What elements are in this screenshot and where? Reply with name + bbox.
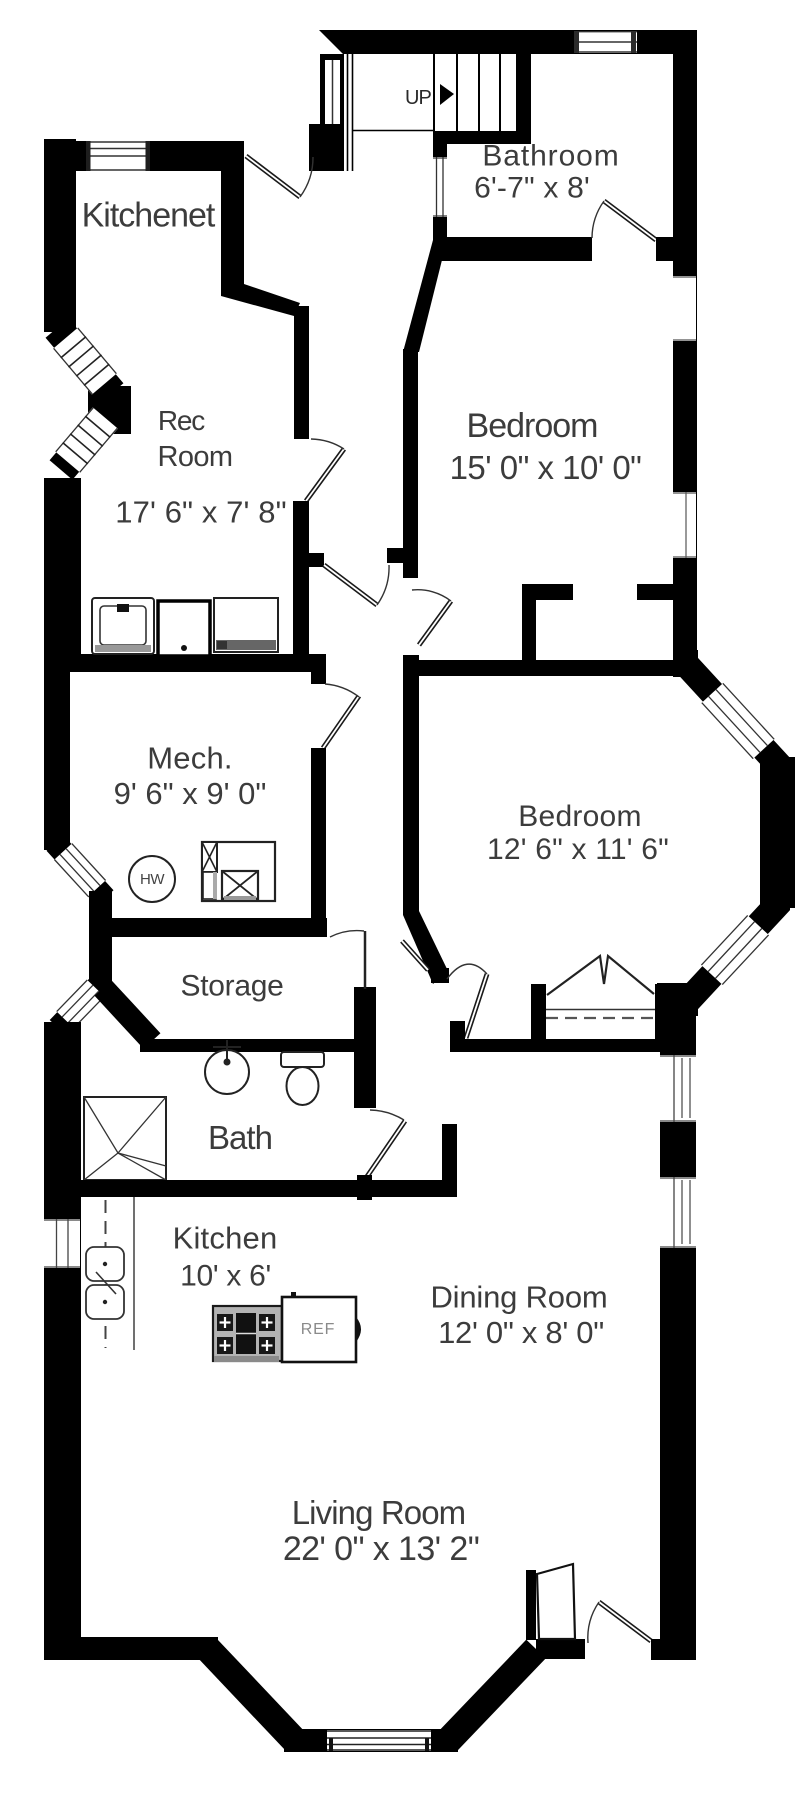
svg-text:9' 6" x 9' 0": 9' 6" x 9' 0" bbox=[114, 776, 267, 811]
svg-text:Mech.: Mech. bbox=[147, 740, 232, 775]
svg-text:12' 0" x 8' 0": 12' 0" x 8' 0" bbox=[438, 1315, 604, 1350]
svg-text:Rec: Rec bbox=[158, 405, 205, 436]
svg-text:Storage: Storage bbox=[181, 970, 284, 1003]
svg-text:Room: Room bbox=[158, 441, 233, 473]
svg-text:Bath: Bath bbox=[208, 1119, 272, 1156]
svg-text:6'-7" x 8': 6'-7" x 8' bbox=[474, 171, 590, 204]
svg-text:Living Room: Living Room bbox=[292, 1494, 466, 1531]
svg-text:UP: UP bbox=[405, 87, 432, 109]
svg-text:17' 6" x 7' 8": 17' 6" x 7' 8" bbox=[115, 495, 286, 530]
svg-text:12' 6" x 11' 6": 12' 6" x 11' 6" bbox=[487, 833, 669, 866]
svg-text:10' x 6': 10' x 6' bbox=[180, 1259, 271, 1292]
svg-text:Bedroom: Bedroom bbox=[467, 407, 598, 445]
svg-text:Dining Room: Dining Room bbox=[431, 1280, 608, 1315]
svg-text:Kitchen: Kitchen bbox=[173, 1221, 278, 1256]
svg-text:Bathroom: Bathroom bbox=[482, 140, 619, 173]
svg-text:HW: HW bbox=[140, 871, 165, 888]
svg-text:REF: REF bbox=[301, 1321, 335, 1338]
svg-text:Kitchenet: Kitchenet bbox=[82, 197, 216, 235]
svg-text:15' 0" x 10' 0": 15' 0" x 10' 0" bbox=[450, 449, 642, 486]
svg-text:Bedroom: Bedroom bbox=[518, 800, 641, 833]
svg-text:22' 0" x 13' 2": 22' 0" x 13' 2" bbox=[283, 1530, 479, 1568]
